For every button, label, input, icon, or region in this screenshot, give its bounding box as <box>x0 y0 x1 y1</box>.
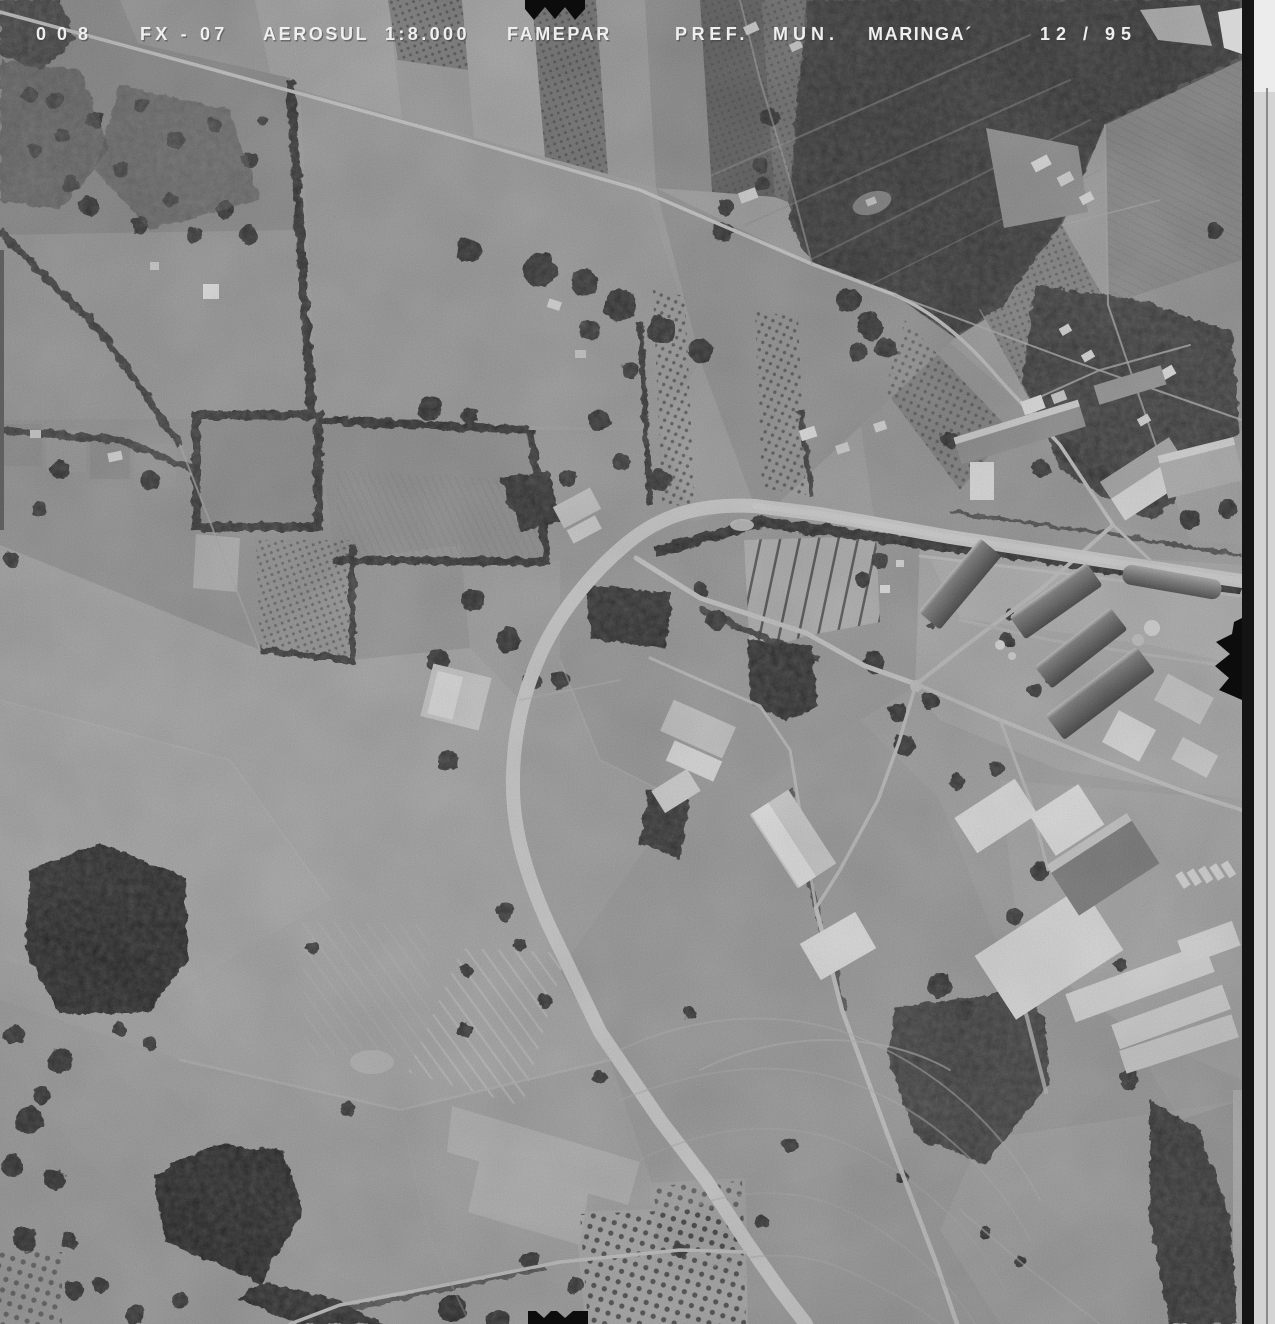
svg-text:MARINGA´: MARINGA´ <box>868 24 973 44</box>
svg-text:MUN.: MUN. <box>773 24 839 44</box>
svg-text:12 / 95: 12 / 95 <box>1040 24 1137 44</box>
svg-text:PREF.: PREF. <box>675 24 749 44</box>
svg-text:FAMEPAR: FAMEPAR <box>507 24 612 44</box>
svg-text:008: 008 <box>36 24 99 44</box>
svg-text:AEROSUL: AEROSUL <box>263 24 369 44</box>
svg-text:1:8.000: 1:8.000 <box>385 24 470 44</box>
svg-text:FX - 07: FX - 07 <box>140 24 228 44</box>
